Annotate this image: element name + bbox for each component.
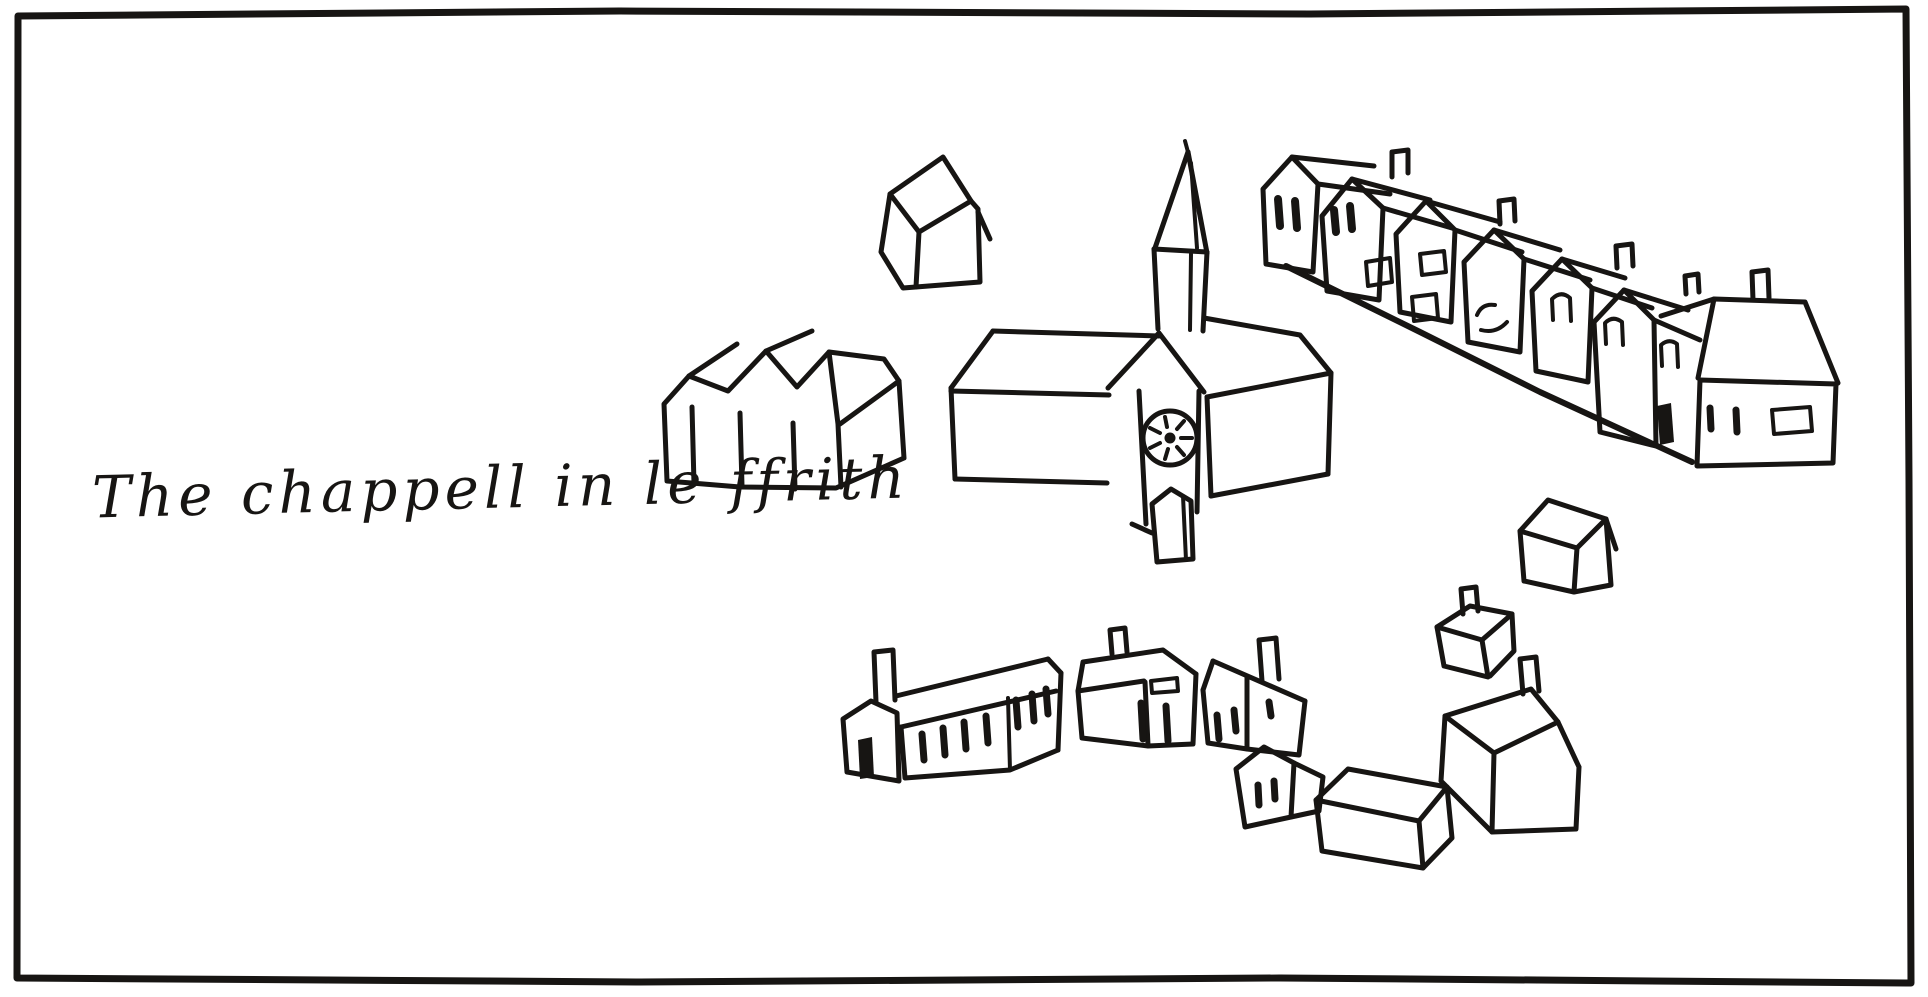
- chimney: [874, 650, 895, 702]
- longhouse-with-chimney-and-door: [843, 650, 1061, 781]
- chimney: [1752, 270, 1769, 300]
- chapel-spire: [1154, 141, 1207, 331]
- large-house-with-chimney: [1441, 657, 1579, 832]
- chapel-chancel: [1204, 318, 1331, 496]
- street-row-of-gabled-houses: [1263, 150, 1838, 466]
- chimney: [1259, 638, 1279, 681]
- clock-face: [1143, 411, 1197, 465]
- street-row-end-house: [1661, 270, 1838, 466]
- dark-doorway: [1657, 403, 1674, 445]
- chapel-porch-hut: [1152, 489, 1193, 562]
- lane-house-with-chimney-1: [1203, 638, 1305, 755]
- barn-house: [1316, 769, 1452, 868]
- detached-house-north: [881, 157, 990, 288]
- chimney: [1110, 628, 1127, 654]
- dark-doorway: [858, 737, 874, 779]
- chimney: [1685, 274, 1699, 294]
- chimney: [1499, 199, 1515, 224]
- chimney: [1392, 150, 1408, 177]
- lane-house-small: [1236, 747, 1323, 827]
- lane-house-with-chimney-2: [1078, 628, 1196, 746]
- sketch-page: The chappell in le ffrith: [0, 0, 1928, 997]
- small-house-with-chimney: [1437, 587, 1514, 677]
- chimney: [1616, 244, 1633, 268]
- cube-house: [1520, 500, 1616, 592]
